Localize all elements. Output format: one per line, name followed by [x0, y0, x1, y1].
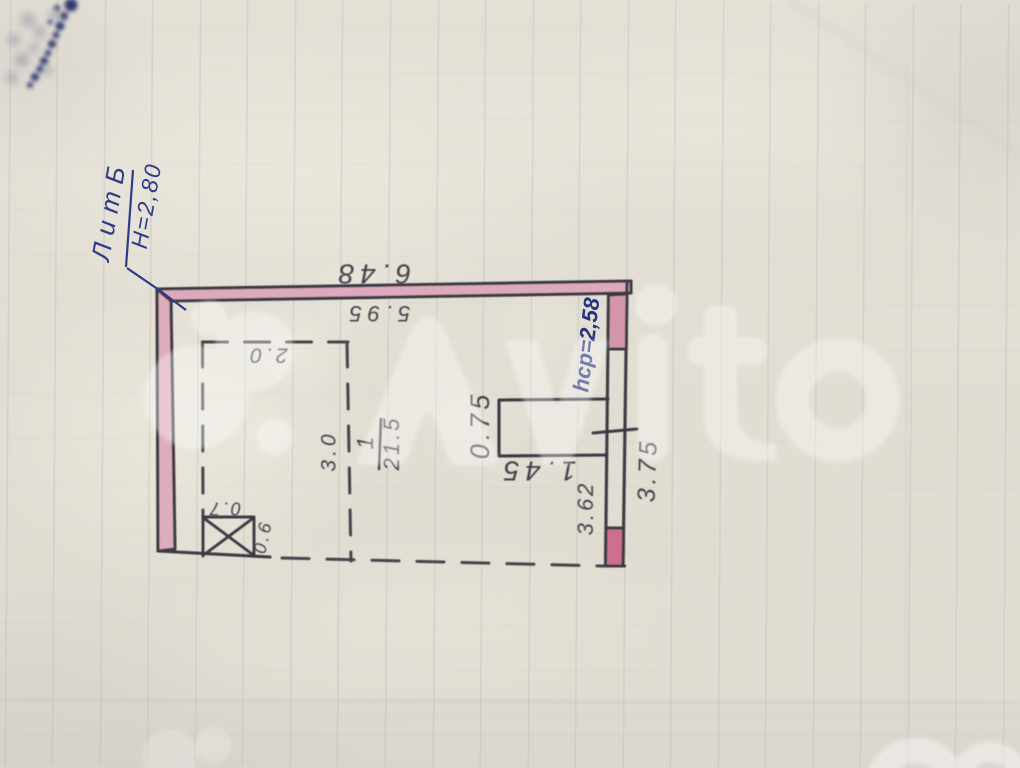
svg-text:5.95: 5.95: [344, 301, 411, 326]
svg-text:3.0: 3.0: [318, 430, 341, 471]
svg-text:6.48: 6.48: [333, 259, 412, 290]
svg-text:3.62: 3.62: [573, 481, 598, 536]
svg-text:0.7: 0.7: [207, 498, 241, 518]
